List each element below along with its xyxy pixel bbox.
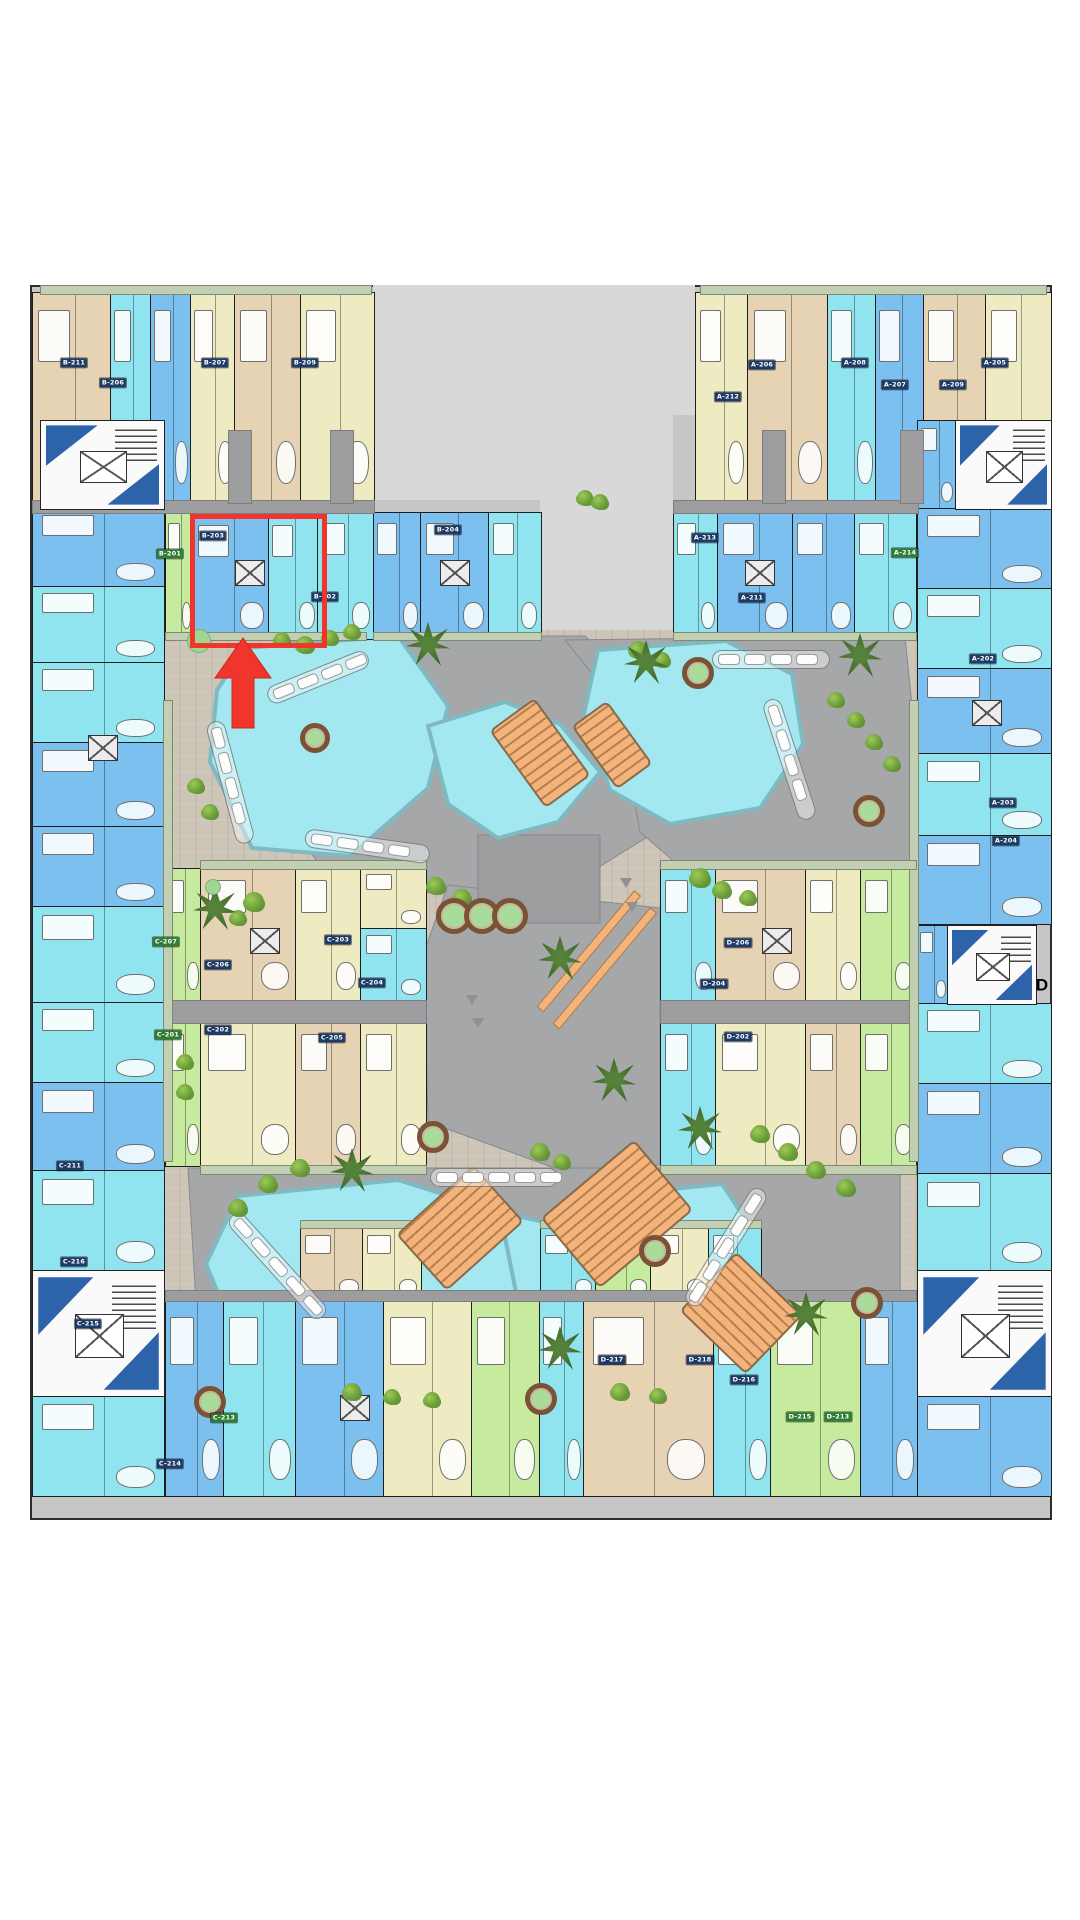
stone-paving <box>424 885 660 1170</box>
stone-plaza <box>478 835 600 923</box>
highlight-box[interactable] <box>190 514 327 648</box>
courtyard-pools-layer <box>0 0 1080 1920</box>
site-plan-page: B-211B-207B-209B-206B-203B-201B-202B-204… <box>0 0 1080 1920</box>
